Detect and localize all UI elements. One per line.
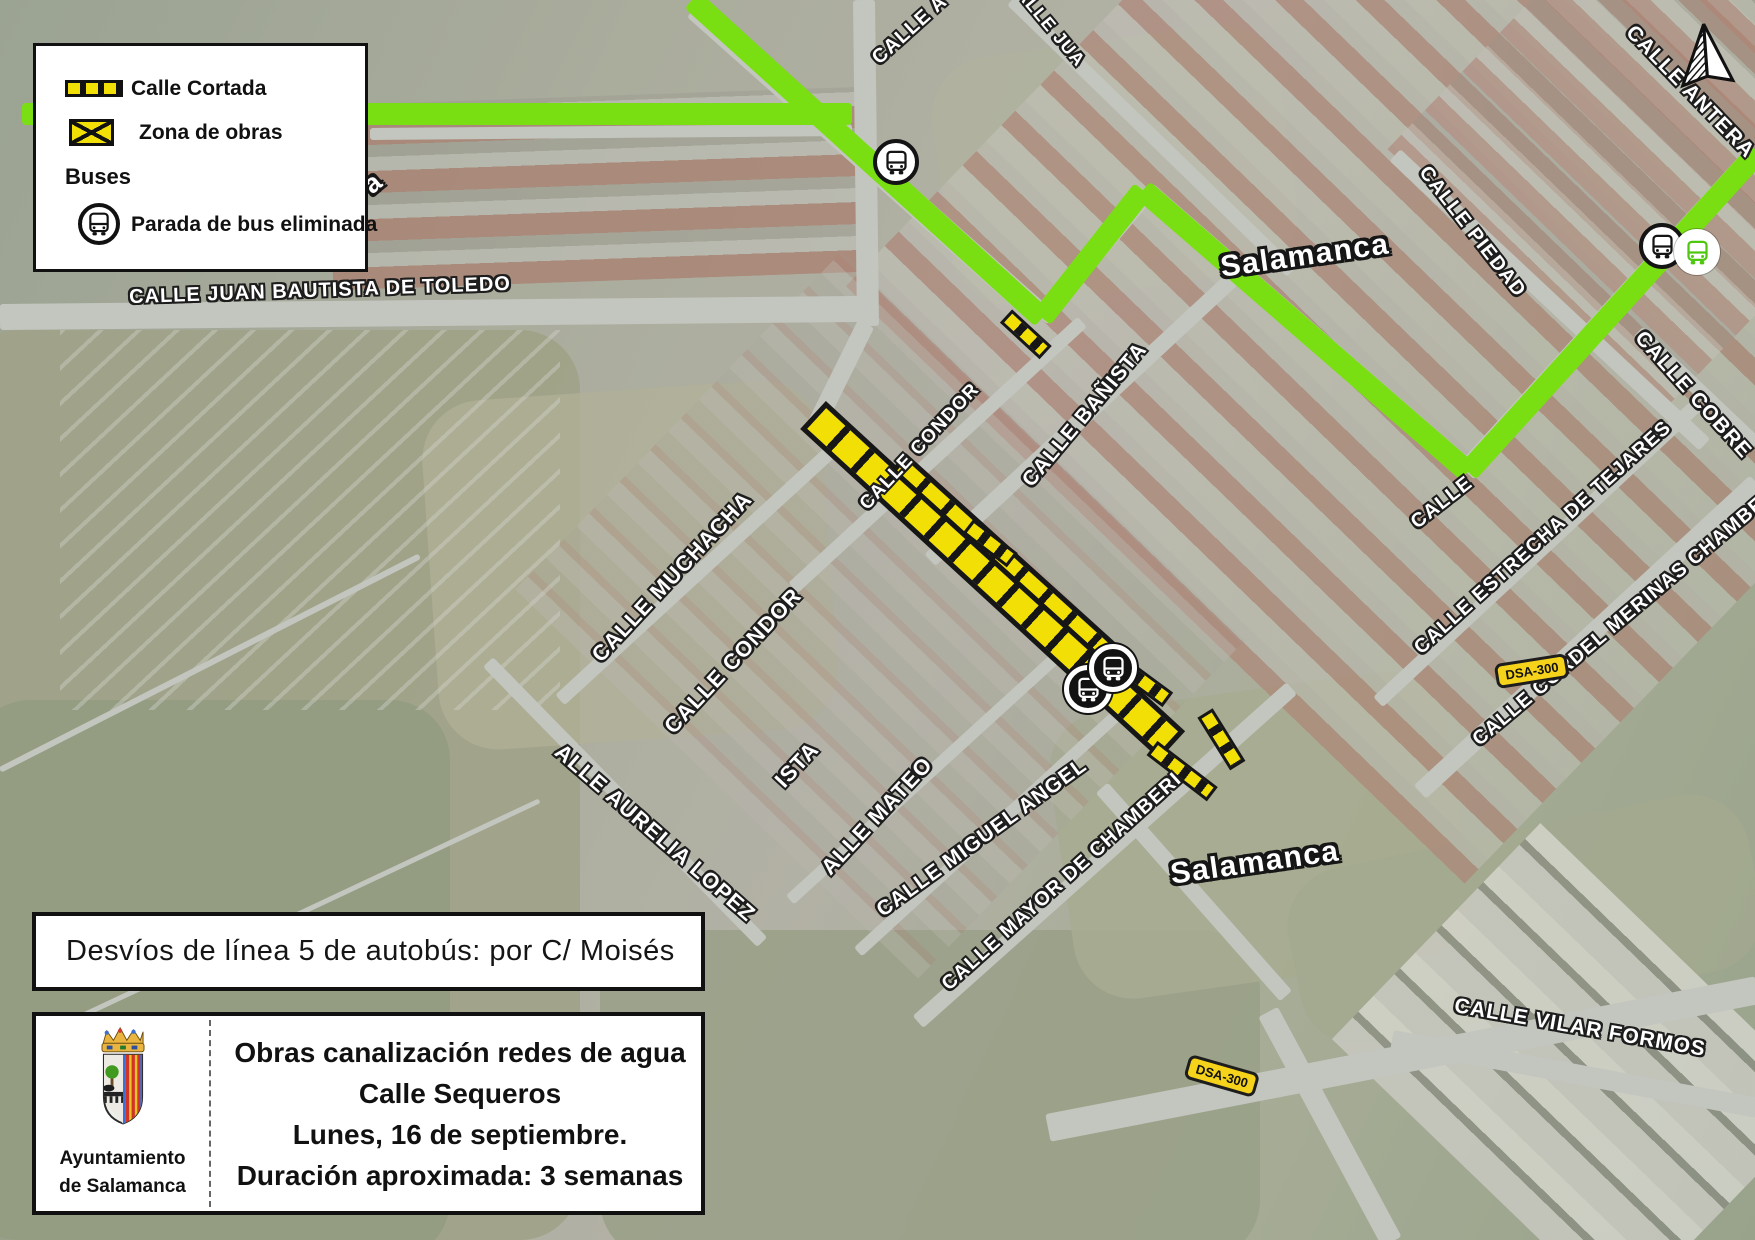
- notice-text: Desvíos de línea 5 de autobús: por C/ Mo…: [36, 935, 675, 968]
- map-viewport: CALLE JUAN BAUTISTA DE TOLEDOCALLE ACALL…: [0, 0, 1755, 1240]
- map-legend: Calle Cortada Zona de obras Buses Parada…: [33, 43, 368, 272]
- announcement-line-3: Lunes, 16 de septiembre.: [216, 1114, 704, 1155]
- bus-diversion-notice: Desvíos de línea 5 de autobús: por C/ Mo…: [32, 912, 705, 991]
- legend-item-zona-obras: Zona de obras: [139, 121, 283, 145]
- announcement-line-4: Duración aproximada: 3 semanas: [216, 1155, 704, 1196]
- bus-stop-icon: [78, 203, 120, 245]
- legend-item-calle-cortada: Calle Cortada: [131, 77, 266, 101]
- compass-north-icon: [1672, 18, 1739, 97]
- announcement-line-1: Obras canalización redes de agua: [216, 1032, 704, 1073]
- org-name-line2: de Salamanca: [36, 1176, 209, 1198]
- salamanca-coat-of-arms-icon: [80, 1024, 166, 1141]
- closed-street-swatch-icon: [65, 80, 123, 97]
- divider: [209, 1020, 211, 1207]
- legend-item-parada-eliminada: Parada de bus eliminada: [131, 213, 377, 237]
- road-shield: DSA-300: [1494, 653, 1570, 689]
- legend-buses-header: Buses: [65, 164, 131, 190]
- road-shield: DSA-300: [1183, 1054, 1261, 1098]
- announcement-line-2: Calle Sequeros: [216, 1073, 704, 1114]
- org-name-line1: Ayuntamiento: [36, 1148, 209, 1170]
- works-announcement: Ayuntamiento de Salamanca Obras canaliza…: [32, 1012, 705, 1215]
- works-zone-swatch-icon: [69, 119, 114, 146]
